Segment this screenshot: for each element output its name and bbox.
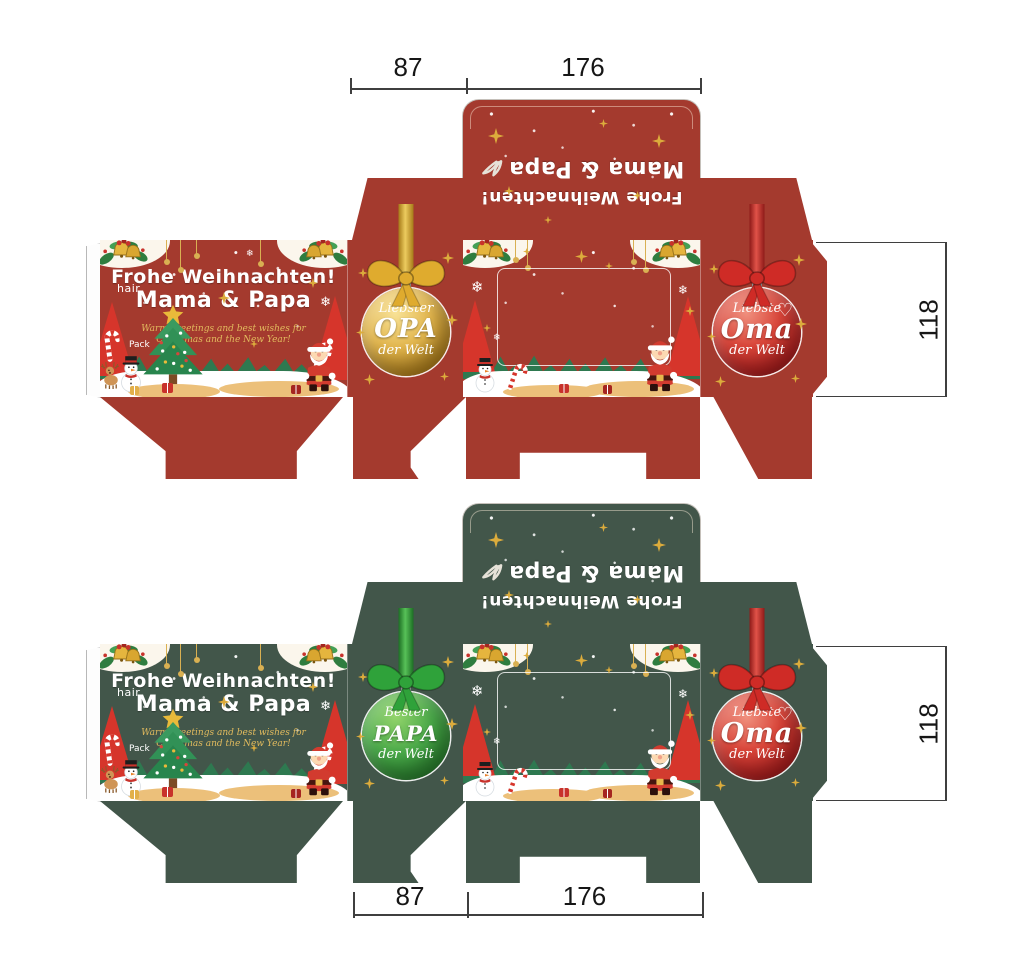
snowflake-icon: ❄ xyxy=(320,700,331,713)
snowflake-icon: ❄ xyxy=(320,296,331,309)
hanging-bauble-icon xyxy=(515,240,516,258)
dimension-line-front-width xyxy=(466,88,700,90)
hanging-bauble-icon xyxy=(645,644,646,672)
dimension-line-height xyxy=(945,242,947,397)
gift-icon xyxy=(291,385,301,394)
hanging-bauble-icon xyxy=(527,644,528,670)
dimension-extension-line xyxy=(816,396,946,397)
front-subtitle-line1: Warm greetings and best wishes for xyxy=(100,728,347,739)
snowflake-icon: ❄ xyxy=(493,738,501,747)
santa-icon xyxy=(298,740,340,798)
lid-flipped-print: Frohe Weihnachten! Mama & Papa xyxy=(463,504,700,644)
snowflake-icon: ❄ xyxy=(471,280,484,295)
gift-icon xyxy=(603,385,612,394)
sparkle-star-icon xyxy=(544,216,552,224)
bells-holly-icon xyxy=(295,644,347,676)
sparkle-star-icon xyxy=(364,778,375,789)
dimension-line-front-width xyxy=(467,914,702,916)
gift-icon xyxy=(130,790,139,799)
sparkle-star-icon xyxy=(791,778,800,787)
hanging-bauble-icon xyxy=(166,240,167,260)
hanging-bauble-icon xyxy=(527,240,528,266)
hanging-bauble-icon xyxy=(196,644,197,658)
sparkle-star-icon xyxy=(715,376,726,387)
ornament-word3: der Welt xyxy=(362,343,450,358)
side-panel-right: ♡ Liebste Oma der Welt xyxy=(700,240,813,397)
gift-icon xyxy=(162,787,173,797)
ribbon-flourish-icon xyxy=(479,563,505,583)
lid-title-line1: Frohe Weihnachten! xyxy=(463,187,700,207)
back-panel: ❄ ❄ ❄ xyxy=(463,240,700,397)
hanging-bauble-icon xyxy=(196,240,197,254)
lid-title-line1: Frohe Weihnachten! xyxy=(463,591,700,611)
glue-flap-right xyxy=(812,647,827,799)
hanging-bauble-icon xyxy=(260,240,261,262)
dimension-extension-line xyxy=(816,800,946,801)
ornament-word2: OPA xyxy=(362,316,450,343)
lid-flap: Frohe Weihnachten! Mama & Papa xyxy=(463,504,700,644)
hanging-bauble-icon xyxy=(515,644,516,662)
sparkle-star-icon xyxy=(575,654,588,667)
front-panel: hair Pack Frohe Weihnachten! Mama & Papa… xyxy=(100,240,347,397)
lid-title-line2-text: Mama & Papa xyxy=(509,156,684,181)
bells-holly-icon xyxy=(295,240,347,272)
sparkle-star-icon xyxy=(440,372,449,381)
bottom-flap-back xyxy=(466,801,700,883)
sparkle-star-icon xyxy=(652,538,666,552)
christmas-tree-icon xyxy=(142,298,204,393)
santa-icon xyxy=(638,738,682,798)
lid-title-line2: Mama & Papa xyxy=(463,560,700,585)
dimension-extension-line xyxy=(816,646,946,647)
bottom-flap-side-right xyxy=(700,801,812,883)
dimension-label-front-width: 176 xyxy=(466,52,700,83)
gift-icon xyxy=(559,788,569,797)
snowflake-icon: ❄ xyxy=(246,250,254,259)
bow-icon xyxy=(709,656,805,712)
lid-title-line2: Mama & Papa xyxy=(463,156,700,181)
lid-flap: Frohe Weihnachten! Mama & Papa xyxy=(463,100,700,240)
gift-icon xyxy=(130,386,139,395)
dimension-tick xyxy=(702,892,704,918)
gift-icon xyxy=(162,383,173,393)
snowflake-icon: ❄ xyxy=(678,284,688,296)
ornament-word3: der Welt xyxy=(713,747,801,762)
snowman-icon xyxy=(471,758,499,798)
dimension-label-front-width: 176 xyxy=(467,881,702,912)
hanging-bauble-icon xyxy=(180,240,181,268)
dimension-label-height: 118 xyxy=(914,299,945,340)
gift-icon xyxy=(559,384,569,393)
lid-title-line2-text: Mama & Papa xyxy=(509,560,684,585)
bottom-flap-front xyxy=(100,801,343,883)
dimension-tick xyxy=(700,78,702,94)
hanging-bauble-icon xyxy=(260,644,261,666)
christmas-tree-icon xyxy=(142,702,204,797)
lid-flipped-print: Frohe Weihnachten! Mama & Papa xyxy=(463,100,700,240)
gift-icon xyxy=(291,789,301,798)
ornament-word2: PAPA xyxy=(362,720,450,747)
sparkle-star-icon xyxy=(544,620,552,628)
snowman-icon xyxy=(471,354,499,394)
bells-holly-icon xyxy=(100,644,152,676)
snowflake-icon: ❄ xyxy=(471,684,484,699)
deer-icon xyxy=(100,360,124,390)
snowflake-icon: ❄ xyxy=(493,334,501,343)
bow-icon xyxy=(358,656,454,712)
hanging-bauble-icon xyxy=(633,644,634,664)
ornament-word3: der Welt xyxy=(362,747,450,762)
side-panel-left: Bester PAPA der Welt xyxy=(347,644,465,801)
side-panel-right: ♡ Liebste Oma der Welt xyxy=(700,644,813,801)
back-panel: ❄ ❄ ❄ xyxy=(463,644,700,801)
sparkle-star-icon xyxy=(488,128,504,144)
hanging-bauble-icon xyxy=(180,644,181,672)
gift-icon xyxy=(603,789,612,798)
dimension-label-side-width: 87 xyxy=(350,52,466,83)
bottom-flap-side-left xyxy=(353,801,466,883)
bow-icon xyxy=(358,252,454,308)
sparkle-star-icon xyxy=(652,134,666,148)
hanging-bauble-icon xyxy=(633,240,634,260)
sparkle-star-icon xyxy=(575,250,588,263)
front-panel: hair Pack Frohe Weihnachten! Mama & Papa… xyxy=(100,644,347,801)
dimension-label-height: 118 xyxy=(914,703,945,744)
ornament-word3: der Welt xyxy=(713,343,801,358)
deer-icon xyxy=(100,764,124,794)
sparkle-star-icon xyxy=(599,119,608,128)
sparkle-star-icon xyxy=(715,780,726,791)
snowflake-icon: ❄ xyxy=(678,688,688,700)
sparkle-star-icon xyxy=(440,776,449,785)
sparkle-star-icon xyxy=(599,523,608,532)
hanging-bauble-icon xyxy=(166,644,167,664)
santa-icon xyxy=(638,334,682,394)
side-panel-left: Liebster OPA der Welt xyxy=(347,240,465,397)
glue-flap-right xyxy=(812,243,827,395)
front-subtitle-line1: Warm greetings and best wishes for xyxy=(100,324,347,335)
bow-icon xyxy=(709,252,805,308)
sparkle-star-icon xyxy=(364,374,375,385)
dimension-extension-line xyxy=(816,242,946,243)
dimension-line-side-width xyxy=(353,914,467,916)
sparkle-star-icon xyxy=(488,532,504,548)
sparkle-star-icon xyxy=(791,374,800,383)
green-box-dieline: Frohe Weihnachten! Mama & Papa hair Pack… xyxy=(0,404,1024,890)
santa-icon xyxy=(298,336,340,394)
ribbon-flourish-icon xyxy=(479,159,505,179)
dimension-line-height xyxy=(945,646,947,801)
dimension-label-side-width: 87 xyxy=(353,881,467,912)
dimension-line-side-width xyxy=(350,88,466,90)
bells-holly-icon xyxy=(100,240,152,272)
hanging-bauble-icon xyxy=(645,240,646,268)
